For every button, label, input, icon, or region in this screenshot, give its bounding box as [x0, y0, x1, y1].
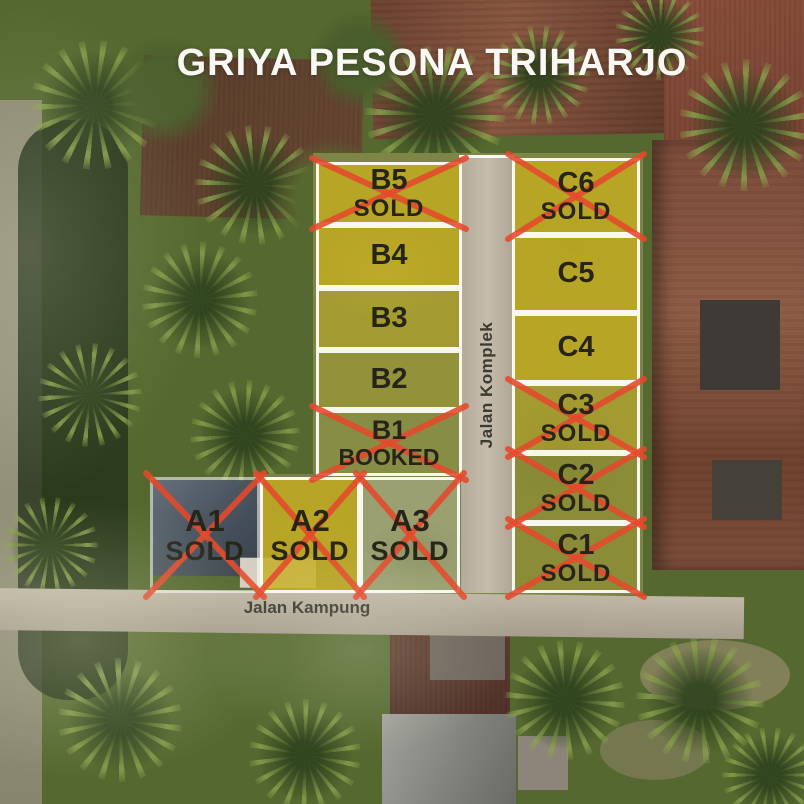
plot-id: A1: [185, 505, 225, 536]
internal-road-label: Jalan Komplek: [477, 322, 497, 449]
rooftop-bottom-gray: [382, 714, 516, 804]
plot-id: C1: [557, 531, 594, 560]
plot-label: B2: [370, 365, 407, 396]
plot-id: B5: [370, 166, 407, 195]
plot-label: A2SOLD: [270, 505, 349, 565]
rooftop-right-courtyard-2: [712, 460, 782, 520]
plot-A2: A2SOLD: [260, 477, 360, 593]
plot-id: B4: [370, 241, 407, 270]
plot-id: B3: [370, 304, 407, 333]
plot-label: A1SOLD: [165, 505, 244, 565]
plot-status: SOLD: [541, 492, 612, 516]
plot-status: SOLD: [270, 538, 349, 565]
plot-C6: C6SOLD: [512, 158, 640, 235]
plot-label: B3: [370, 304, 407, 335]
plot-label: A3SOLD: [370, 505, 449, 565]
plot-C3: C3SOLD: [512, 383, 640, 453]
plot-id: C6: [557, 169, 594, 198]
plot-C1: C1SOLD: [512, 523, 640, 593]
plot-label: C2SOLD: [541, 461, 612, 516]
plot-label: C4: [557, 333, 594, 364]
plot-id: C3: [557, 391, 594, 420]
plot-C5: C5: [512, 235, 640, 313]
plot-id: C2: [557, 461, 594, 490]
plot-C2: C2SOLD: [512, 453, 640, 523]
plot-label: C5: [557, 259, 594, 290]
rooftop-right-courtyard: [700, 300, 780, 390]
plot-label: B1BOOKED: [339, 417, 440, 469]
plot-B2: B2: [316, 350, 462, 410]
plot-B5: B5SOLD: [316, 162, 462, 225]
plot-C4: C4: [512, 313, 640, 383]
plot-status: SOLD: [370, 538, 449, 565]
plot-id: A3: [390, 505, 430, 536]
plot-label: B4: [370, 241, 407, 272]
plot-status: SOLD: [541, 200, 612, 224]
plot-id: B1: [372, 417, 407, 444]
plot-id: B2: [370, 365, 407, 394]
plot-B4: B4: [316, 225, 462, 288]
plot-label: C1SOLD: [541, 531, 612, 586]
plot-status: SOLD: [165, 538, 244, 565]
plot-A3: A3SOLD: [360, 477, 460, 593]
plot-id: C4: [557, 333, 594, 362]
plot-id: C5: [557, 259, 594, 288]
site-title: GRIYA PESONA TRIHARJO: [177, 42, 688, 85]
plot-B3: B3: [316, 288, 462, 350]
plot-label: C6SOLD: [541, 169, 612, 224]
plot-label: B5SOLD: [354, 166, 425, 221]
rooftop-bottom-panel: [430, 635, 505, 680]
plot-label: C3SOLD: [541, 391, 612, 446]
plot-B1: B1BOOKED: [316, 410, 462, 476]
plot-id: A2: [290, 505, 330, 536]
plot-status: SOLD: [541, 422, 612, 446]
plot-A1: A1SOLD: [150, 477, 260, 593]
plot-status: SOLD: [354, 197, 425, 221]
plot-status: BOOKED: [339, 446, 440, 469]
village-road-label: Jalan Kampung: [244, 598, 371, 618]
plot-status: SOLD: [541, 562, 612, 586]
aerial-site-plan: B5SOLD B4 B3 B2 B1BOOKED C6SOLD C5 C4 C3…: [0, 0, 804, 804]
